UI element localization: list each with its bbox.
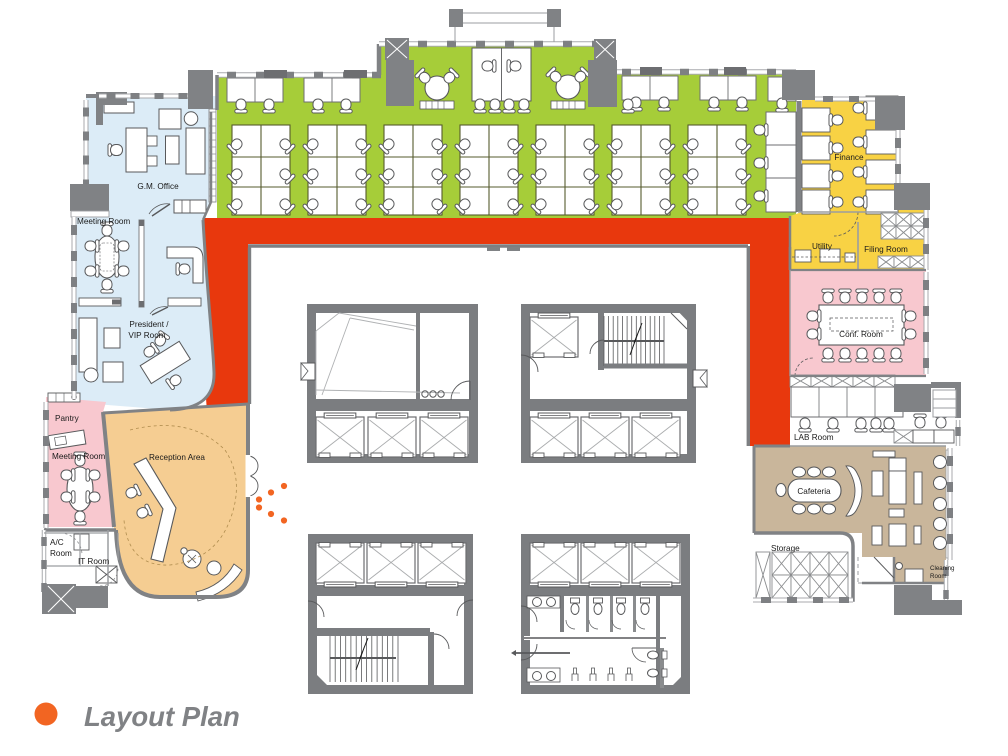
svg-text:Cafeteria: Cafeteria (797, 487, 831, 496)
svg-text:LAB Room: LAB Room (794, 433, 834, 442)
svg-text:IT Room: IT Room (78, 557, 109, 566)
svg-text:Filing Room: Filing Room (864, 245, 908, 254)
svg-text:Conf. Room: Conf. Room (839, 330, 883, 339)
svg-text:A/C: A/C (50, 538, 64, 547)
svg-text:Room: Room (930, 573, 947, 580)
svg-text:Meeting Room: Meeting Room (52, 452, 105, 461)
svg-text:Meeting Room: Meeting Room (77, 217, 130, 226)
svg-text:Cleaning: Cleaning (930, 565, 955, 572)
svg-text:Pantry: Pantry (55, 414, 80, 423)
svg-text:Finance: Finance (834, 153, 864, 162)
svg-text:Room: Room (50, 549, 72, 558)
svg-text:VIP Room: VIP Room (128, 331, 165, 340)
svg-text:G.M. Office: G.M. Office (137, 182, 179, 191)
svg-text:Layout Plan: Layout Plan (84, 701, 240, 732)
svg-text:Storage: Storage (771, 544, 800, 553)
svg-text:President /: President / (129, 320, 169, 329)
svg-text:Reception Area: Reception Area (149, 453, 205, 462)
svg-text:Utility: Utility (812, 242, 833, 251)
